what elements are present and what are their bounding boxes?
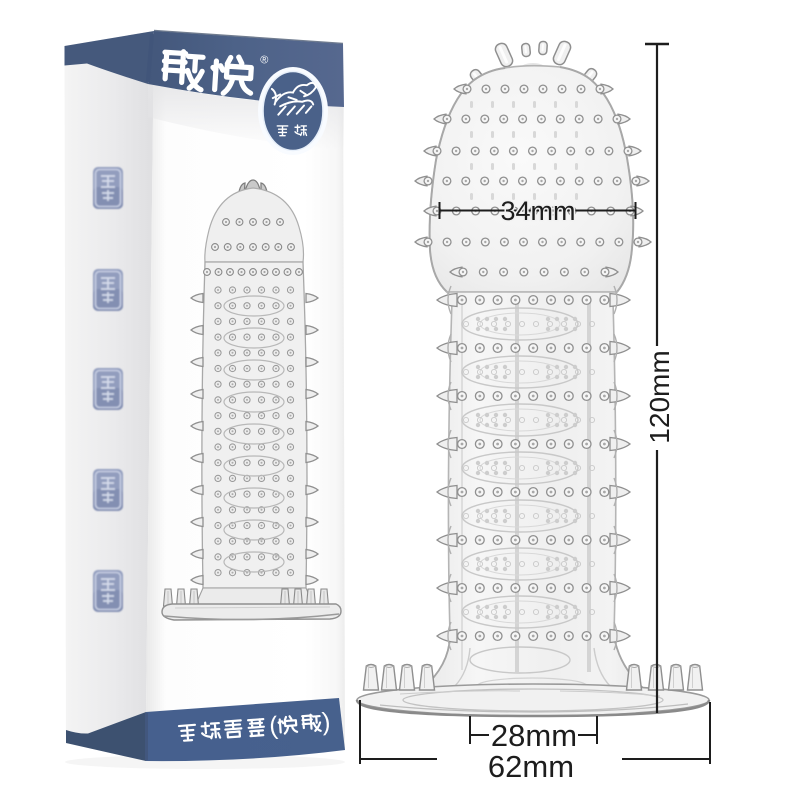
- svg-text:28mm: 28mm: [491, 718, 577, 753]
- svg-text:62mm: 62mm: [488, 749, 574, 784]
- svg-text:®: ®: [260, 54, 269, 66]
- svg-text:120mm: 120mm: [644, 350, 675, 443]
- svg-text:34mm: 34mm: [500, 196, 575, 226]
